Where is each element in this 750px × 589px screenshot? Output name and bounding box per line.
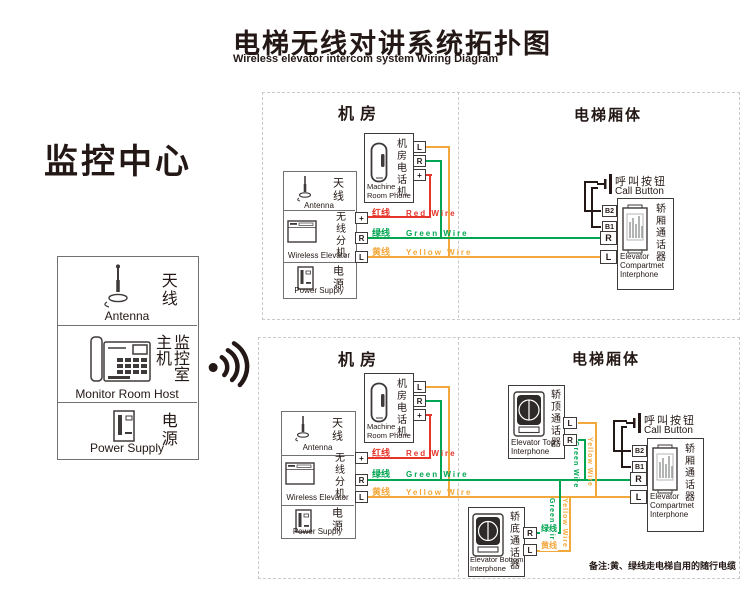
green-wire-label-en: Green Wire <box>406 470 469 479</box>
monitor-antenna-label-en: Antenna <box>57 310 197 324</box>
red-wire-label-en: Red Wire <box>406 209 457 218</box>
monitor-box-divider-2 <box>57 402 197 403</box>
bottom-wireless-label-en: Wireless Elevator <box>281 493 354 502</box>
bottom-compartment-terminal-b2: B2 <box>632 445 647 457</box>
red-wire-label-cn: 红线 <box>372 208 390 218</box>
bottom-machine-terminal-r: R <box>413 395 426 407</box>
bottom-compartment-label-en: Elevator Compartmet Interphone <box>650 492 700 520</box>
bottom-elevator-car-header: 电梯厢体 <box>572 348 640 369</box>
top-elevator-car-header: 电梯厢体 <box>574 104 642 125</box>
monitor-antenna-icon <box>98 264 134 315</box>
top-wireless-terminal-plus: + <box>355 212 368 224</box>
green-wire-vertical-label: Green Wire <box>572 441 579 488</box>
top-interphone-speaker-icon <box>513 391 545 442</box>
call-button-lead <box>584 181 586 212</box>
yellow-wire-segment <box>569 496 571 552</box>
bottom-machine-phone-label-en: Machine Room Phone <box>367 423 411 440</box>
bottom-machine-terminal-plus: + <box>413 409 426 421</box>
top-compartment-terminal-l: L <box>600 250 617 264</box>
yellow-wire-vertical-label: Yellow Wire <box>586 437 593 487</box>
top-antenna-label-en: Antenna <box>283 201 355 210</box>
monitor-antenna-label-cn: 天线 <box>158 272 175 308</box>
top-green-wire-label: 绿线Green Wire <box>372 226 469 239</box>
bottom-interphone-terminal-l: L <box>523 544 537 556</box>
top-call-button-icon <box>597 171 613 202</box>
green-wire-label-cn: 绿线 <box>372 469 390 479</box>
top-call-button-label-en: Call Button <box>615 186 664 198</box>
top-machine-terminal-plus: + <box>413 169 426 181</box>
call-button-lead <box>584 181 598 183</box>
monitor-power-label-en: Power Supply <box>57 442 197 456</box>
top-compartment-grille-icon <box>622 204 648 259</box>
bottom-yellow-wire-label: 黄线Yellow Wire <box>372 485 472 498</box>
yellow-wire-vertical-label: Yellow Wire <box>561 498 568 548</box>
monitor-center-heading: 监控中心 <box>44 134 192 183</box>
top-compartment-terminal-r: R <box>600 231 617 245</box>
yellow-wire-segment <box>448 146 450 258</box>
top-equipment-divider-2 <box>283 262 355 263</box>
top-wireless-icon <box>287 220 317 248</box>
call-button-lead <box>613 420 627 422</box>
bottom-wireless-terminal-r: R <box>355 474 368 486</box>
top-wireless-terminal-r: R <box>355 232 368 244</box>
monitor-host-label-cn: 监控室主机 <box>152 334 188 388</box>
top-machine-room-header: 机房 <box>338 100 382 124</box>
top-interphone-terminal-l: L <box>563 417 577 429</box>
bottom-interphone-green-label: 绿线 <box>540 523 558 534</box>
bottom-red-wire-label: 红线Red Wire <box>372 446 457 459</box>
monitor-box-divider-1 <box>57 325 197 326</box>
yellow-wire-segment <box>595 422 597 498</box>
green-wire-vertical-label: Green Wire <box>548 498 555 545</box>
bottom-equipment-divider-2 <box>281 505 354 506</box>
call-button-lead <box>613 420 615 452</box>
red-wire-label-cn: 红线 <box>372 448 390 458</box>
top-wireless-label-en: Wireless Elevator <box>283 251 355 260</box>
call-button-lead <box>591 187 598 189</box>
top-interphone-label-en: Elevator Top Interphone <box>511 438 561 456</box>
green-wire-label-en: Green Wire <box>406 229 469 238</box>
top-section-divider <box>458 92 459 318</box>
bottom-call-button-icon <box>626 410 642 441</box>
top-yellow-wire-label: 黄线Yellow Wire <box>372 245 472 258</box>
yellow-wire-label-en: Yellow Wire <box>406 248 472 257</box>
top-red-wire-label: 红线Red Wire <box>372 206 457 219</box>
red-wire-label-en: Red Wire <box>406 449 457 458</box>
bottom-call-button-label-en: Call Button <box>644 425 693 437</box>
yellow-wire-segment <box>448 386 450 498</box>
top-compartment-terminal-b2: B2 <box>602 205 617 217</box>
monitor-host-label-en: Monitor Room Host <box>57 388 197 402</box>
bottom-green-wire-label: 绿线Green Wire <box>372 467 469 480</box>
yellow-wire-label-en: Yellow Wire <box>406 488 472 497</box>
yellow-wire-segment <box>426 146 450 148</box>
diagram-note: 备注:黄、绿线走电梯自用的随行电缆 <box>589 559 736 572</box>
bottom-antenna-label-cn: 天线 <box>330 417 342 443</box>
bottom-wireless-icon <box>285 462 315 490</box>
monitor-host-phone-icon <box>88 333 154 392</box>
top-antenna-label-cn: 天线 <box>331 177 343 203</box>
yellow-wire-label-cn: 黄线 <box>372 247 390 257</box>
wireless-signal-icon <box>202 340 260 395</box>
top-interphone-terminal-r: R <box>563 434 577 446</box>
bottom-compartment-terminal-r: R <box>630 472 647 486</box>
bottom-wireless-terminal-plus: + <box>355 452 368 464</box>
top-power-label-en: Power Supply <box>283 286 355 295</box>
bottom-antenna-label-en: Antenna <box>281 443 354 452</box>
bottom-machine-room-header: 机房 <box>338 346 382 370</box>
bottom-interphone-label-en: Elevator Bottom Interphone <box>470 556 526 573</box>
call-button-lead <box>591 187 593 228</box>
yellow-wire-segment <box>426 386 450 388</box>
top-wireless-terminal-l: L <box>355 251 368 263</box>
top-machine-terminal-l: L <box>413 141 426 153</box>
bottom-compartment-terminal-l: L <box>630 490 647 504</box>
call-button-lead <box>621 426 627 428</box>
top-machine-terminal-r: R <box>413 155 426 167</box>
wiring-diagram-page: 电梯无线对讲系统拓扑图 Wireless elevator intercom s… <box>0 0 750 589</box>
green-wire-label-cn: 绿线 <box>372 228 390 238</box>
top-compartment-label-en: Elevator Compartmet Interphone <box>620 252 670 280</box>
bottom-section-divider <box>458 337 459 577</box>
bottom-machine-terminal-l: L <box>413 381 426 393</box>
yellow-wire-label-cn: 黄线 <box>372 487 390 497</box>
bottom-wireless-terminal-l: L <box>355 491 368 503</box>
top-machine-phone-label-en: Machine Room Phone <box>367 183 411 200</box>
bottom-interphone-terminal-r: R <box>523 527 537 539</box>
call-button-lead <box>621 426 623 468</box>
page-subtitle: Wireless elevator intercom system Wiring… <box>233 53 498 65</box>
bottom-interphone-yellow-label: 黄线 <box>540 540 558 551</box>
bottom-power-label-en: Power Supply <box>281 527 354 536</box>
bottom-compartment-grille-icon <box>652 444 678 499</box>
